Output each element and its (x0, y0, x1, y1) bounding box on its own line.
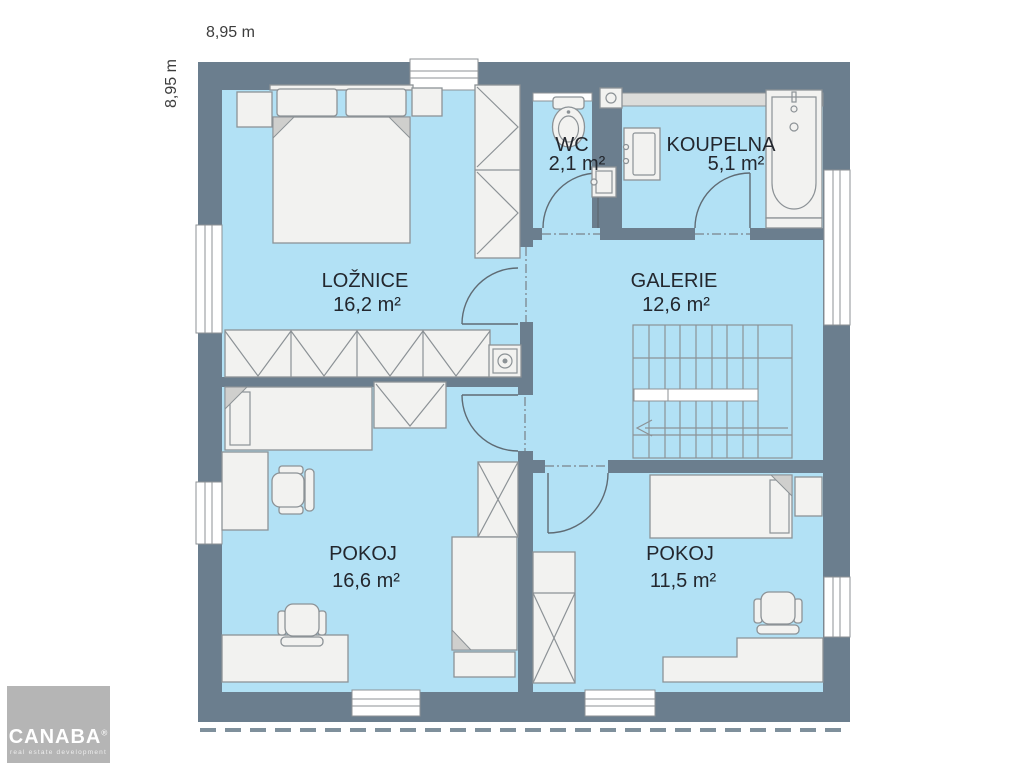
window-left-pokoj (196, 482, 222, 544)
dimension-top: 8,95 m (206, 24, 255, 41)
single-bed-right (452, 537, 517, 677)
window-top-loznice (410, 59, 478, 90)
logo-brand: CANABA® (9, 727, 109, 747)
window-right-koupelna-galerie (824, 170, 850, 325)
floor-plan: LOŽNICE 16,2 m² WC 2,1 m² KOUPELNA 5,1 m… (0, 0, 1024, 768)
nightstand-pokoj-right (795, 477, 822, 516)
logo-tagline: real estate development (10, 749, 107, 756)
room-area-galerie: 12,6 m² (642, 294, 710, 316)
room-area-wc: 2,1 m² (549, 153, 606, 175)
room-area-koupelna: 5,1 m² (708, 153, 765, 175)
registered-mark: ® (101, 728, 108, 737)
office-chair-icon (278, 604, 326, 646)
dimension-left: 8,95 m (163, 59, 180, 108)
vent-box-icon (600, 88, 622, 108)
closet-row-loznice (225, 330, 490, 377)
room-label-pokoj-left: POKOJ (329, 543, 397, 565)
washing-machine-icon (624, 128, 661, 180)
office-chair-icon (272, 466, 314, 514)
room-label-pokoj-right: POKOJ (646, 543, 714, 565)
room-label-loznice: LOŽNICE (322, 269, 409, 292)
single-bed-pokoj-right (650, 475, 792, 538)
window-bottom-pokoj-right (585, 690, 655, 716)
wardrobe-pokoj-left-top (374, 382, 446, 428)
room-area-pokoj-left: 16,6 m² (332, 570, 400, 592)
window-bottom-pokoj-left (352, 690, 420, 716)
wardrobe-loznice-right (475, 85, 520, 258)
office-chair-icon (754, 592, 802, 634)
canaba-logo: CANABA® real estate development (7, 686, 110, 763)
wardrobe-pokoj-right (533, 552, 575, 683)
desk-left (222, 452, 268, 530)
nightstand-left (237, 92, 272, 127)
wardrobe-pokoj-left-right (478, 462, 518, 537)
window-left-loznice (196, 225, 222, 333)
nightstand-right (412, 88, 442, 116)
stair-handrail (634, 389, 758, 401)
room-area-loznice: 16,2 m² (333, 294, 401, 316)
single-bed-top (225, 387, 372, 450)
bathtub-icon (766, 90, 822, 228)
sink-cabinet-icon (489, 345, 521, 377)
window-right-pokoj (824, 577, 850, 637)
room-label-galerie: GALERIE (631, 270, 718, 292)
room-area-pokoj-right: 11,5 m² (650, 570, 717, 592)
